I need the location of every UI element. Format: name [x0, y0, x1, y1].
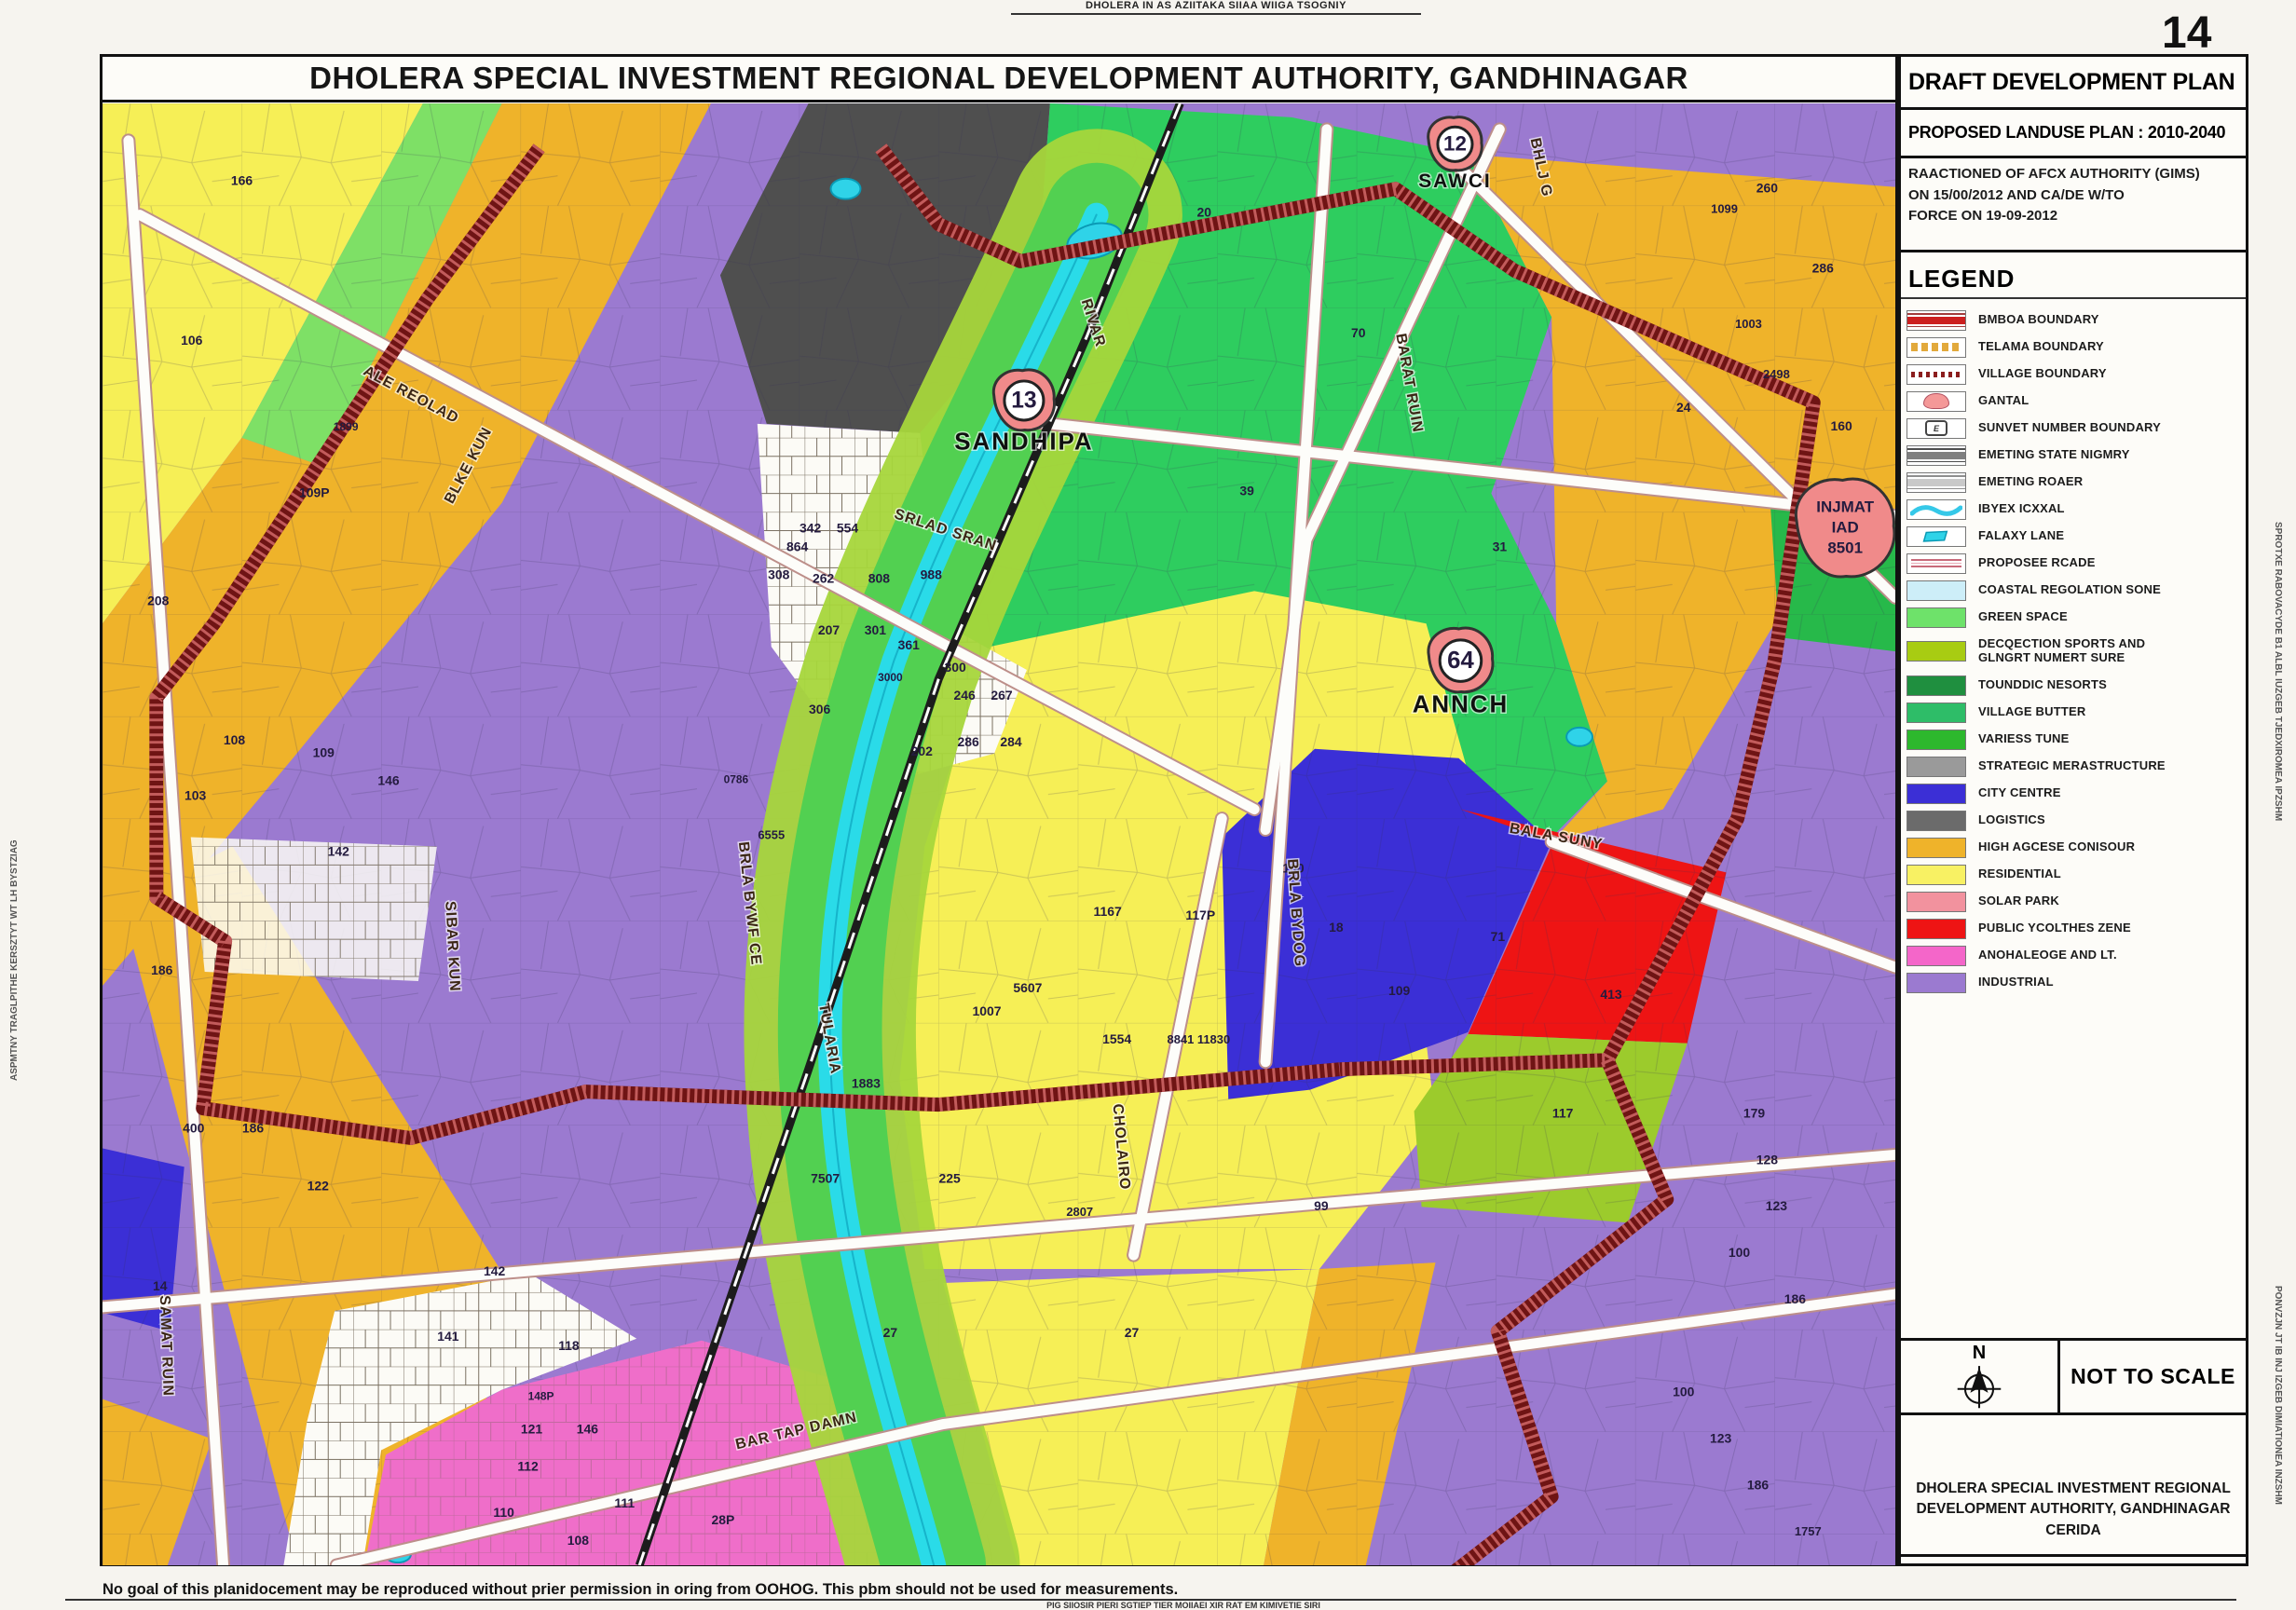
svg-text:306: 306 — [809, 702, 831, 716]
svg-text:1007: 1007 — [973, 1003, 1002, 1018]
svg-text:2498: 2498 — [1763, 367, 1790, 381]
disclaimer: No goal of this planidocement may be rep… — [102, 1581, 1178, 1599]
svg-text:308: 308 — [768, 566, 790, 581]
bottom-edge-caption: PIG SIIOSIR PIERI SGTIEP TIER MOIIAEI XI… — [1025, 1601, 1342, 1610]
svg-text:27: 27 — [883, 1325, 898, 1340]
legend-item-label: ANOHALEOGE AND LT. — [1978, 948, 2117, 962]
legend-item-label: SOLAR PARK — [1978, 894, 2059, 908]
sanction-box: RAACTIONED OF AFCX AUTHORITY (GIMS) ON 1… — [1901, 158, 2246, 252]
legend-item-label: COASTAL REGOLATION SONE — [1978, 583, 2161, 597]
scale-cell: NOT TO SCALE — [2060, 1341, 2246, 1412]
svg-text:1883: 1883 — [852, 1076, 881, 1091]
authority-line-1: DHOLERA SPECIAL INVESTMENT REGIONAL — [1916, 1479, 2231, 1499]
legend-item-label: RESIDENTIAL — [1978, 867, 2061, 881]
svg-text:64: 64 — [1447, 648, 1474, 674]
right-edge-caption-2: PONVZJN JT IB INJ IZGEB DIMIATIONEA INZS… — [2273, 1286, 2283, 1505]
svg-text:27: 27 — [1125, 1325, 1140, 1340]
svg-text:202: 202 — [911, 744, 934, 758]
legend-item: COASTAL REGOLATION SONE — [1906, 577, 2240, 604]
legend-swatch-fill-icon — [1906, 675, 1966, 696]
map-canvas: 166106109P208189910810914610314218640018… — [102, 102, 1895, 1566]
svg-text:112: 112 — [517, 1458, 539, 1473]
landuse-map: 166106109P208189910810914610314218640018… — [102, 102, 1895, 1566]
svg-text:864: 864 — [786, 539, 809, 553]
info-panel: DRAFT DEVELOPMENT PLAN PROPOSED LANDUSE … — [1898, 54, 2248, 1566]
legend-item-label: VILLAGE BOUNDARY — [1978, 367, 2107, 381]
legend-swatch-line-icon — [1906, 310, 1966, 331]
svg-text:117: 117 — [1552, 1106, 1574, 1121]
legend-item-label: PROPOSEE RCADE — [1978, 556, 2096, 570]
svg-text:400: 400 — [183, 1121, 205, 1136]
map-title-bar: DHOLERA SPECIAL INVESTMENT REGIONAL DEVE… — [102, 57, 1895, 102]
svg-text:246: 246 — [953, 688, 976, 703]
legend-item-label: GANTAL — [1978, 394, 2029, 408]
svg-text:7507: 7507 — [811, 1170, 840, 1185]
svg-text:1003: 1003 — [1735, 317, 1762, 331]
legend-item: IBYEX ICXXAL — [1906, 496, 2240, 523]
legend-item: VARIESS TUNE — [1906, 726, 2240, 753]
svg-text:179: 179 — [1743, 1106, 1766, 1121]
legend-title-box: LEGEND — [1901, 252, 2246, 299]
legend-swatch-line-icon — [1906, 445, 1966, 466]
svg-text:146: 146 — [377, 773, 400, 788]
svg-text:554: 554 — [837, 521, 859, 536]
legend-item: GANTAL — [1906, 388, 2240, 415]
svg-text:0786: 0786 — [724, 773, 749, 786]
legend-item: ESUNVET NUMBER BOUNDARY — [1906, 415, 2240, 442]
svg-text:121: 121 — [521, 1421, 543, 1436]
legend-item: FALAXY LANE — [1906, 523, 2240, 550]
legend-item-label: BMBOA BOUNDARY — [1978, 313, 2099, 327]
svg-text:13: 13 — [1011, 388, 1036, 413]
legend-swatch-line-icon — [1906, 472, 1966, 493]
svg-text:225: 225 — [939, 1170, 962, 1185]
legend-swatch-fill-icon — [1906, 607, 1966, 628]
svg-text:267: 267 — [991, 688, 1013, 703]
svg-text:28P: 28P — [712, 1512, 735, 1527]
svg-text:1554: 1554 — [1102, 1031, 1131, 1046]
legend-item: BMBOA BOUNDARY — [1906, 307, 2240, 334]
svg-text:IAD: IAD — [1832, 519, 1859, 537]
legend-swatch-dots-icon — [1906, 364, 1966, 385]
svg-text:1167: 1167 — [1094, 904, 1122, 919]
legend-item-label: INDUSTRIAL — [1978, 976, 2054, 989]
svg-text:117P: 117P — [1185, 907, 1215, 922]
svg-text:109: 109 — [313, 745, 335, 760]
legend-swatch-fill-icon — [1906, 892, 1966, 912]
legend-swatch-gamtal-icon — [1906, 391, 1966, 412]
legend-item: DECQECTION SPORTS AND GLNGRT NUMERT SURE — [1906, 631, 2240, 672]
svg-text:128: 128 — [1756, 1152, 1779, 1167]
svg-text:108: 108 — [567, 1533, 590, 1548]
left-edge-caption: ASPMTNY TRAGLPITHE KERSZTYT WT LH BYSTZI… — [9, 839, 20, 1081]
legend-item: EMETING ROAER — [1906, 469, 2240, 496]
subtitle-box: PROPOSED LANDUSE PLAN : 2010-2040 — [1901, 110, 2246, 158]
svg-text:342: 342 — [799, 521, 822, 536]
svg-text:361: 361 — [898, 637, 921, 652]
legend-item: VILLAGE BOUNDARY — [1906, 361, 2240, 388]
svg-text:18: 18 — [1329, 920, 1344, 935]
svg-text:208: 208 — [147, 593, 170, 607]
legend-item-label: STRATEGIC MERASTRUCTURE — [1978, 759, 2166, 773]
plan-sheet: DHOLERA IN AS AZIITAKA SIIAA WIIGA TSOGN… — [0, 0, 2296, 1610]
svg-text:SAWCI: SAWCI — [1418, 171, 1492, 192]
legend-swatch-fill-icon — [1906, 757, 1966, 777]
legend-swatch-pond-icon — [1906, 526, 1966, 547]
svg-text:146: 146 — [577, 1421, 599, 1436]
legend-item: STRATEGIC MERASTRUCTURE — [1906, 753, 2240, 780]
right-edge-caption-1: SPROTXE RABOVACYDE B1 ALBL IUZGEB TJEDXI… — [2273, 522, 2283, 821]
svg-text:1899: 1899 — [334, 420, 359, 433]
svg-text:142: 142 — [328, 843, 350, 858]
svg-text:413: 413 — [1600, 987, 1622, 1002]
draft-title-box: DRAFT DEVELOPMENT PLAN — [1901, 57, 2246, 110]
legend-item-label: SUNVET NUMBER BOUNDARY — [1978, 421, 2161, 435]
legend-swatch-fill-icon — [1906, 919, 1966, 939]
legend-item-label: VILLAGE BUTTER — [1978, 705, 2085, 719]
svg-text:186: 186 — [242, 1121, 265, 1136]
legend-item-label: EMETING STATE NIGMRY — [1978, 448, 2130, 462]
svg-text:109: 109 — [1388, 983, 1411, 998]
sanction-line-2: ON 15/00/2012 AND CA/DE W/TO — [1908, 185, 2238, 207]
legend-item-label: LOGISTICS — [1978, 813, 2045, 827]
svg-text:106: 106 — [181, 333, 203, 348]
svg-text:123: 123 — [1766, 1198, 1788, 1213]
svg-text:6555: 6555 — [758, 827, 785, 841]
svg-text:1099: 1099 — [1711, 202, 1738, 216]
legend-swatch-fill-icon — [1906, 703, 1966, 723]
svg-text:262: 262 — [813, 570, 835, 585]
legend-swatch-canal-icon — [1906, 499, 1966, 520]
legend-item: PUBLIC YCOLTHES ZENE — [1906, 915, 2240, 942]
draft-title: DRAFT DEVELOPMENT PLAN — [1908, 69, 2234, 96]
legend-swatch-fill-icon — [1906, 784, 1966, 804]
legend-item: TELAMA BOUNDARY — [1906, 334, 2240, 361]
svg-text:100: 100 — [1673, 1385, 1695, 1399]
svg-text:166: 166 — [231, 173, 253, 188]
legend-list: BMBOA BOUNDARYTELAMA BOUNDARYVILLAGE BOU… — [1901, 299, 2246, 996]
authority-box: DHOLERA SPECIAL INVESTMENT REGIONAL DEVE… — [1901, 1415, 2246, 1557]
legend-item-label: VARIESS TUNE — [1978, 732, 2070, 746]
svg-text:300: 300 — [945, 660, 967, 675]
legend-swatch-fill-icon — [1906, 730, 1966, 750]
legend-item-label: CITY CENTRE — [1978, 786, 2061, 800]
sanction-line-3: FORCE ON 19-09-2012 — [1908, 206, 2238, 227]
svg-text:8841 11830: 8841 11830 — [1168, 1032, 1231, 1046]
svg-text:186: 186 — [151, 962, 173, 977]
legend-swatch-dash-icon — [1906, 337, 1966, 358]
svg-text:5607: 5607 — [1013, 980, 1042, 995]
svg-text:111: 111 — [614, 1495, 635, 1510]
north-scale-row: N NOT TO SCALE — [1901, 1338, 2246, 1415]
svg-text:99: 99 — [1314, 1198, 1329, 1213]
svg-text:284: 284 — [1000, 734, 1022, 749]
svg-text:118: 118 — [558, 1338, 580, 1353]
legend-swatch-fill-icon — [1906, 580, 1966, 601]
authority-line-3: CERIDA — [2045, 1521, 2100, 1541]
svg-text:109P: 109P — [299, 485, 330, 500]
svg-text:8501: 8501 — [1827, 539, 1863, 556]
legend-item-label: TELAMA BOUNDARY — [1978, 340, 2104, 354]
legend-item-label: DECQECTION SPORTS AND GLNGRT NUMERT SURE — [1978, 637, 2145, 665]
legend-item-label: FALAXY LANE — [1978, 529, 2064, 543]
svg-text:3000: 3000 — [878, 671, 903, 684]
svg-text:108: 108 — [224, 732, 246, 747]
top-edge-caption: DHOLERA IN AS AZIITAKA SIIAA WIIGA TSOGN… — [1011, 0, 1421, 15]
authority-line-2: DEVELOPMENT AUTHORITY, GANDHINAGAR — [1917, 1499, 2231, 1520]
svg-text:207: 207 — [818, 622, 840, 637]
svg-text:39: 39 — [1239, 484, 1254, 498]
legend-item: VILLAGE BUTTER — [1906, 699, 2240, 726]
legend-item: LOGISTICS — [1906, 807, 2240, 834]
legend-item-label: TOUNDDIC NESORTS — [1978, 678, 2107, 692]
landuse-subtitle: PROPOSED LANDUSE PLAN : 2010-2040 — [1908, 123, 2225, 143]
legend-item: ANOHALEOGE AND LT. — [1906, 942, 2240, 969]
legend-swatch-fill-icon — [1906, 973, 1966, 993]
svg-text:31: 31 — [1493, 539, 1508, 553]
svg-text:103: 103 — [184, 788, 207, 803]
legend-swatch-fill-icon — [1906, 865, 1966, 885]
svg-text:301: 301 — [865, 622, 887, 637]
map-title: DHOLERA SPECIAL INVESTMENT REGIONAL DEVE… — [309, 61, 1688, 96]
svg-text:122: 122 — [307, 1178, 330, 1193]
svg-text:24: 24 — [1676, 400, 1691, 415]
legend-title: LEGEND — [1908, 265, 2015, 293]
legend-swatch-fill-icon — [1906, 838, 1966, 858]
north-label: N — [1973, 1344, 1986, 1362]
svg-text:142: 142 — [484, 1263, 506, 1278]
legend-item: HIGH AGCESE CONISOUR — [1906, 834, 2240, 861]
svg-text:2807: 2807 — [1066, 1205, 1093, 1219]
legend-item: PROPOSEE RCADE — [1906, 550, 2240, 577]
svg-text:123: 123 — [1710, 1430, 1732, 1445]
map-frame: DHOLERA SPECIAL INVESTMENT REGIONAL DEVE… — [100, 54, 1898, 1566]
legend-item: INDUSTRIAL — [1906, 969, 2240, 996]
svg-text:1757: 1757 — [1795, 1524, 1822, 1538]
svg-text:110: 110 — [493, 1505, 514, 1520]
svg-text:ANNCH: ANNCH — [1413, 692, 1510, 718]
legend-item: EMETING STATE NIGMRY — [1906, 442, 2240, 469]
svg-text:INJMAT: INJMAT — [1816, 498, 1874, 516]
svg-text:70: 70 — [1351, 325, 1366, 340]
svg-text:SANDHIPA: SANDHIPA — [954, 429, 1093, 455]
legend-swatch-fill-icon — [1906, 811, 1966, 831]
north-arrow-icon — [1953, 1362, 2005, 1411]
north-cell: N — [1901, 1341, 2060, 1412]
legend-swatch-fill-icon — [1906, 641, 1966, 662]
legend-item-label: PUBLIC YCOLTHES ZENE — [1978, 921, 2131, 935]
svg-text:14: 14 — [153, 1278, 168, 1293]
sanction-line-1: RAACTIONED OF AFCX AUTHORITY (GIMS) — [1908, 164, 2238, 185]
svg-text:260: 260 — [1756, 181, 1779, 196]
legend-item: CITY CENTRE — [1906, 780, 2240, 807]
svg-text:160: 160 — [1831, 418, 1853, 433]
legend-swatch-proposed-road-icon — [1906, 553, 1966, 574]
svg-text:12: 12 — [1443, 131, 1467, 155]
legend-item: TOUNDDIC NESORTS — [1906, 672, 2240, 699]
legend-item-label: EMETING ROAER — [1978, 475, 2083, 489]
svg-text:20: 20 — [1197, 205, 1212, 220]
svg-text:186: 186 — [1747, 1477, 1770, 1492]
svg-text:71: 71 — [1491, 929, 1506, 944]
svg-text:988: 988 — [921, 566, 943, 581]
legend-item-label: GREEN SPACE — [1978, 610, 2068, 624]
svg-text:286: 286 — [1812, 260, 1835, 275]
page-number: 14 — [2162, 7, 2211, 59]
scale-text: NOT TO SCALE — [2070, 1364, 2235, 1389]
legend-item-label: IBYEX ICXXAL — [1978, 502, 2065, 516]
svg-text:808: 808 — [868, 570, 891, 585]
legend-item: RESIDENTIAL — [1906, 861, 2240, 888]
svg-text:141: 141 — [437, 1329, 459, 1344]
svg-text:100: 100 — [1729, 1245, 1751, 1260]
legend-item: GREEN SPACE — [1906, 604, 2240, 631]
svg-text:186: 186 — [1784, 1291, 1807, 1306]
svg-text:148P: 148P — [528, 1390, 554, 1403]
svg-text:286: 286 — [957, 734, 979, 749]
legend-item-label: HIGH AGCESE CONISOUR — [1978, 840, 2135, 854]
legend-swatch-survey-icon: E — [1906, 418, 1966, 439]
legend-swatch-fill-icon — [1906, 946, 1966, 966]
legend-item: SOLAR PARK — [1906, 888, 2240, 915]
